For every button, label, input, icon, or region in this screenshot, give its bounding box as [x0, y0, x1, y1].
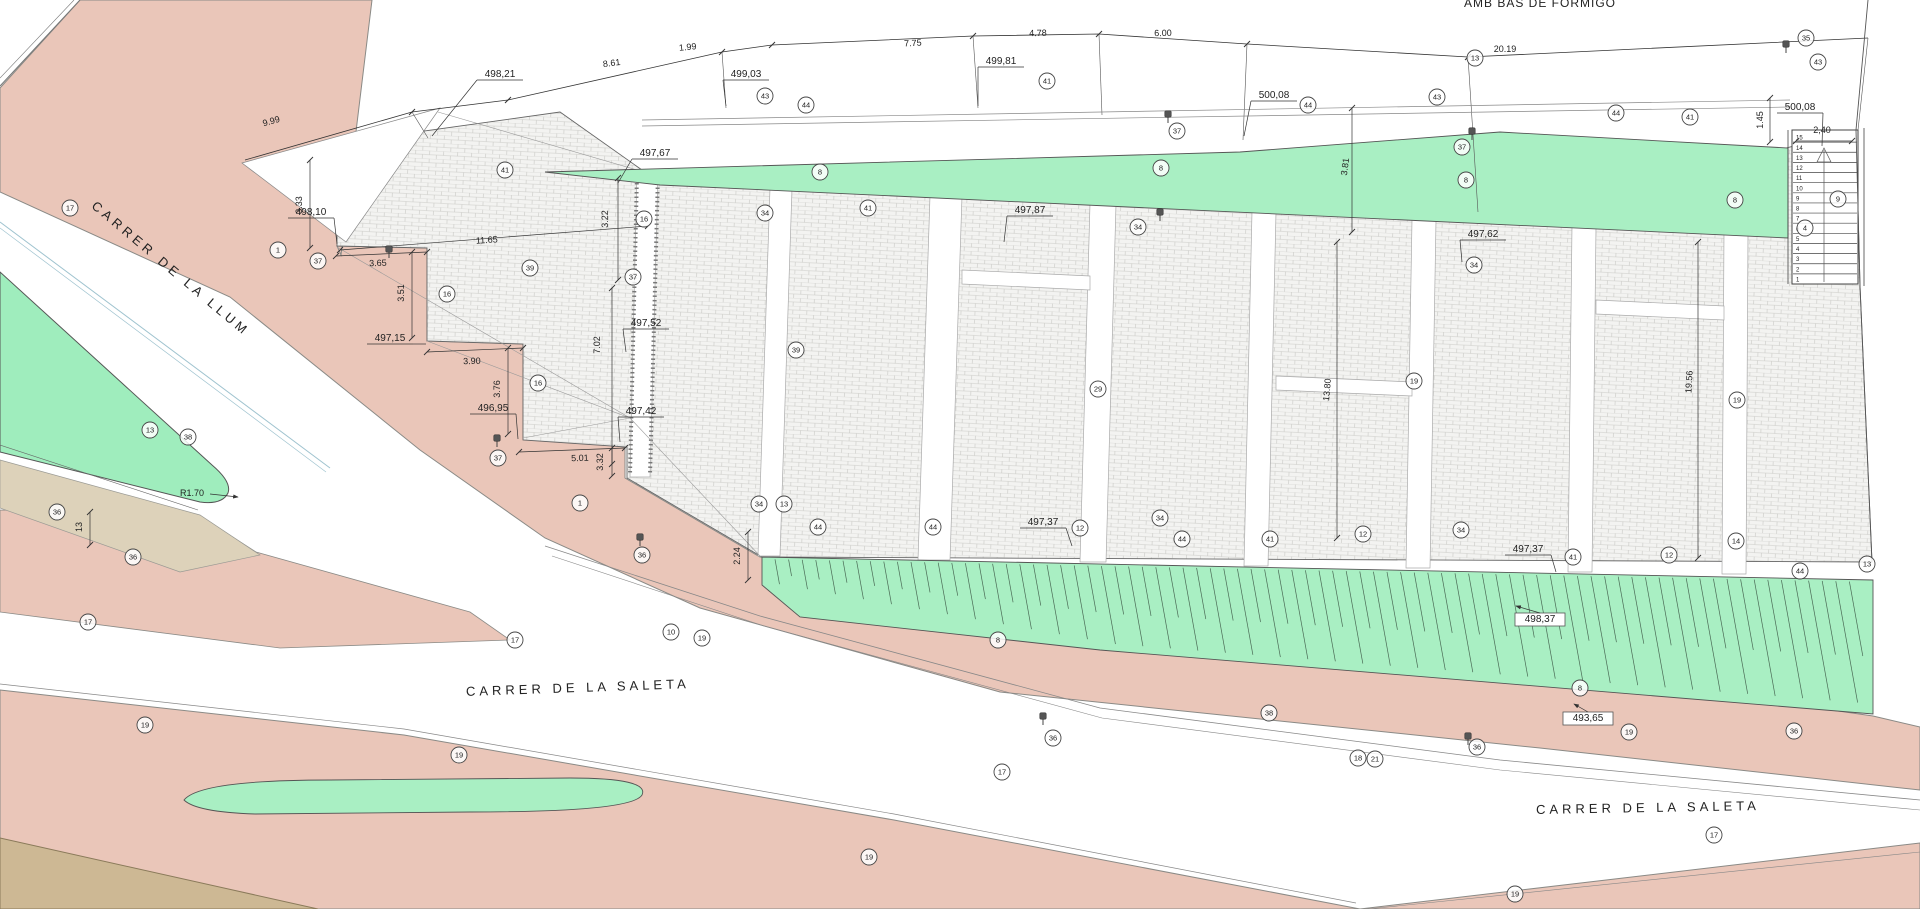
- keynote: 8: [1572, 680, 1588, 696]
- keynote-number: 43: [1433, 93, 1441, 102]
- street-name-label: CARRER DE LA SALETA: [1536, 798, 1760, 817]
- stair-number: 14: [1796, 146, 1803, 152]
- keynote-number: 41: [864, 204, 872, 213]
- site-plan-drawing: 123456789101112131415 R: [0, 0, 1920, 909]
- keynote-number: 44: [814, 523, 822, 532]
- keynote: 12: [1355, 526, 1371, 542]
- keynote: 36: [1786, 723, 1802, 739]
- stair-number: 10: [1796, 186, 1803, 192]
- dim-text: 3.32: [595, 453, 605, 471]
- keynote: 34: [1453, 522, 1469, 538]
- keynote-number: 14: [1732, 537, 1740, 546]
- keynote-number: 35: [1802, 34, 1810, 43]
- keynote-number: 19: [698, 634, 706, 643]
- keynote-number: 19: [1625, 728, 1633, 737]
- keynote-number: 8: [1464, 176, 1468, 185]
- keynote: 19: [451, 747, 467, 763]
- keynote-number: 16: [640, 215, 648, 224]
- keynote-number: 19: [141, 721, 149, 730]
- elevation-text: 498,10: [296, 207, 327, 218]
- elevation-text: 500,08: [1259, 90, 1290, 101]
- dim-text: 3.51: [396, 284, 406, 302]
- keynote: 19: [1507, 886, 1523, 902]
- elevation-text: 497,15: [375, 333, 406, 344]
- keynote-number: 13: [1471, 54, 1479, 63]
- elevation-text: 497,52: [631, 318, 662, 329]
- keynote: 34: [1152, 510, 1168, 526]
- keynote: 17: [1706, 827, 1722, 843]
- keynote: 41: [1682, 109, 1698, 125]
- keynote-number: 18: [1354, 754, 1362, 763]
- street-name-label: CARRER DE LA SALETA: [466, 676, 690, 699]
- dim-text: 5.01: [571, 453, 589, 464]
- keynote: 14: [1728, 533, 1744, 549]
- keynote-number: 39: [792, 346, 800, 355]
- keynote: 41: [1565, 549, 1581, 565]
- keynote-number: 1: [578, 499, 582, 508]
- utility-marker-head: [1465, 733, 1471, 739]
- keynote-number: 17: [1710, 831, 1718, 840]
- keynote-number: 38: [184, 433, 192, 442]
- elevation-text: 500,08: [1785, 102, 1816, 113]
- keynote: 39: [788, 342, 804, 358]
- keynote-number: 44: [929, 523, 937, 532]
- keynote-number: 8: [996, 636, 1000, 645]
- utility-marker-head: [1165, 111, 1171, 117]
- utility-marker-head: [386, 246, 392, 252]
- keynote-number: 19: [455, 751, 463, 760]
- keynote-number: 41: [1266, 535, 1274, 544]
- dim-text: 7.02: [592, 336, 602, 354]
- keynote-number: 34: [1457, 526, 1465, 535]
- keynote-number: 17: [66, 204, 74, 213]
- keynote: 36: [125, 549, 141, 565]
- keynote: 8: [1153, 160, 1169, 176]
- keynote-number: 34: [1134, 223, 1142, 232]
- keynote-number: 43: [761, 92, 769, 101]
- keynote: 43: [1810, 54, 1826, 70]
- keynote-number: 19: [865, 853, 873, 862]
- elevation-text: 498,37: [1525, 614, 1556, 625]
- dimension: 7.75: [904, 38, 922, 49]
- keynote-number: 17: [511, 636, 519, 645]
- utility-marker-head: [494, 435, 500, 441]
- elevation-text: 499,03: [731, 69, 762, 80]
- elevation-text: 497,37: [1513, 544, 1544, 555]
- dim-text: 1.45: [1755, 111, 1765, 129]
- keynote-number: 17: [998, 768, 1006, 777]
- keynote-number: 44: [1178, 535, 1186, 544]
- keynote: 19: [694, 630, 710, 646]
- dim-text: 19.56: [1683, 370, 1694, 393]
- sidewalk-southeast-band: [1360, 843, 1920, 909]
- keynote: 17: [62, 200, 78, 216]
- keynote: 44: [1300, 97, 1316, 113]
- elevation-leader: [1244, 101, 1251, 136]
- utility-marker: [1165, 111, 1171, 123]
- keynote: 38: [1261, 705, 1277, 721]
- keynote: 41: [860, 200, 876, 216]
- keynote: 37: [1454, 139, 1470, 155]
- dimension: 4.78: [1029, 28, 1047, 38]
- keynote-number: 12: [1665, 551, 1673, 560]
- dim-text: 1.99: [678, 41, 696, 53]
- keynote: 17: [80, 614, 96, 630]
- keynote-number: 44: [802, 101, 810, 110]
- elevation-text: 496,95: [478, 403, 509, 414]
- dim-text: 13: [74, 522, 84, 532]
- keynote: 1: [572, 495, 588, 511]
- keynote: 44: [810, 519, 826, 535]
- dim-text: 6.00: [1154, 28, 1172, 38]
- keynote-number: 37: [1458, 143, 1466, 152]
- keynote: 34: [751, 496, 767, 512]
- utility-marker: [1040, 713, 1046, 725]
- dim-text: 13.80: [1321, 378, 1333, 401]
- keynote: 44: [1608, 105, 1624, 121]
- elevation-text: 497,42: [626, 406, 657, 417]
- keynote-number: 44: [1304, 101, 1312, 110]
- elevation-text: 493,65: [1573, 713, 1604, 724]
- keynote: 34: [1466, 257, 1482, 273]
- stair-number: 13: [1796, 156, 1803, 162]
- stairs: 123456789101112131415: [1788, 128, 1864, 286]
- keynote: 37: [490, 450, 506, 466]
- keynote: 41: [497, 162, 513, 178]
- dimension: 1.45: [1755, 95, 1773, 145]
- keynote: 36: [49, 504, 65, 520]
- keynote: 13: [1467, 50, 1483, 66]
- keynote: 16: [439, 286, 455, 302]
- keynote-number: 38: [1265, 709, 1273, 718]
- keynote-number: 43: [1814, 58, 1822, 67]
- keynote-number: 37: [494, 454, 502, 463]
- keynote: 41: [1262, 531, 1278, 547]
- stair-number: 12: [1796, 166, 1803, 172]
- utility-marker-head: [1157, 209, 1163, 215]
- keynote-number: 37: [1173, 127, 1181, 136]
- keynote-number: 21: [1371, 755, 1379, 764]
- dim-text: 20.19: [1494, 44, 1517, 54]
- elevation-text: 497,62: [1468, 229, 1499, 240]
- keynote: 34: [1130, 219, 1146, 235]
- dim-text: 3.22: [600, 210, 610, 228]
- keynote-number: 8: [1159, 164, 1163, 173]
- dim-text: 8.61: [602, 57, 621, 69]
- keynote-number: 41: [501, 166, 509, 175]
- keynote: 18: [1350, 750, 1366, 766]
- keynote: 43: [1429, 89, 1445, 105]
- stair-number: 11: [1796, 176, 1803, 182]
- keynote-number: 19: [1733, 396, 1741, 405]
- keynote: 13: [142, 422, 158, 438]
- keynote: 8: [1727, 192, 1743, 208]
- keynote: 21: [1367, 751, 1383, 767]
- keynote-number: 16: [443, 290, 451, 299]
- keynote-number: 41: [1569, 553, 1577, 562]
- keynote: 43: [757, 88, 773, 104]
- dim-text: 3.81: [1339, 157, 1351, 176]
- keynote-number: 36: [1049, 734, 1057, 743]
- keynote: 8: [990, 632, 1006, 648]
- elevation-text: 497,87: [1015, 205, 1046, 216]
- elevation-text: 497,37: [1028, 517, 1059, 528]
- keynote: 34: [757, 205, 773, 221]
- keynote: 37: [625, 269, 641, 285]
- dim-text: 2,40: [1813, 125, 1831, 135]
- keynote-number: 34: [761, 209, 769, 218]
- elevation-text: 498,21: [485, 69, 516, 80]
- keynote-number: 34: [755, 500, 763, 509]
- keynote: 19: [1621, 724, 1637, 740]
- keynote: 4: [1797, 220, 1813, 236]
- dim-text: 3.90: [463, 356, 481, 367]
- elevation-label: 500,08: [1244, 90, 1297, 136]
- elevation-label: 499,81: [978, 56, 1024, 106]
- keynote-number: 36: [1790, 727, 1798, 736]
- dim-text: 2.24: [732, 547, 742, 565]
- keynote-number: 13: [780, 500, 788, 509]
- keynote: 12: [1072, 520, 1088, 536]
- keynote-number: 8: [818, 168, 822, 177]
- keynote-number: 10: [667, 628, 675, 637]
- keynote: 36: [1045, 730, 1061, 746]
- keynote-number: 1: [276, 246, 280, 255]
- keynote: 29: [1090, 381, 1106, 397]
- keynote-number: 36: [1473, 743, 1481, 752]
- elevation-text: 497,67: [640, 148, 671, 159]
- keynote: 38: [180, 429, 196, 445]
- keynote-number: 13: [146, 426, 154, 435]
- keynote-number: 4: [1803, 224, 1807, 233]
- utility-marker-head: [1469, 128, 1475, 134]
- keynote: 44: [1792, 563, 1808, 579]
- keynote: 17: [994, 764, 1010, 780]
- keynote: 8: [1458, 172, 1474, 188]
- keynote: 19: [1729, 392, 1745, 408]
- keynote-number: 16: [534, 379, 542, 388]
- keynote: 9: [1830, 191, 1846, 207]
- utility-marker: [1783, 41, 1789, 53]
- keynote: 39: [522, 260, 538, 276]
- keynote-number: 44: [1612, 109, 1620, 118]
- dim-text: 4.78: [1029, 28, 1047, 38]
- utility-marker-head: [1040, 713, 1046, 719]
- keynote-number: 9: [1836, 195, 1840, 204]
- keynote-number: 8: [1578, 684, 1582, 693]
- keynote: 36: [1469, 739, 1485, 755]
- dim-text: 3.65: [369, 258, 387, 269]
- keynote: 13: [776, 496, 792, 512]
- green-island-west: [0, 272, 229, 503]
- utility-marker-head: [637, 534, 643, 540]
- keynote-number: 37: [314, 257, 322, 266]
- dimension: 1.99: [678, 41, 696, 53]
- keynote: 17: [507, 632, 523, 648]
- keynote-number: 12: [1076, 524, 1084, 533]
- dimension: 6.00: [1154, 28, 1172, 38]
- keynote: 44: [1174, 531, 1190, 547]
- keynote: 36: [634, 547, 650, 563]
- dim-text: 3.76: [492, 380, 502, 398]
- keynote: 8: [812, 164, 828, 180]
- keynote-number: 39: [526, 264, 534, 273]
- keynote-number: 17: [84, 618, 92, 627]
- keynote: 1: [270, 242, 286, 258]
- keynote-number: 12: [1359, 530, 1367, 539]
- dim-text: 7.75: [904, 38, 922, 49]
- keynote-number: 36: [638, 551, 646, 560]
- keynote-number: 41: [1043, 77, 1051, 86]
- top-right-note: AMB BAS DE FORMIGO: [1464, 0, 1616, 10]
- keynote-number: 29: [1094, 385, 1102, 394]
- dimension: 8.61: [602, 57, 621, 69]
- keynote: 12: [1661, 547, 1677, 563]
- keynote: 19: [1406, 373, 1422, 389]
- keynote: 37: [310, 253, 326, 269]
- keynote: 19: [861, 849, 877, 865]
- keynote-number: 36: [129, 553, 137, 562]
- keynote-number: 19: [1511, 890, 1519, 899]
- radius-label: R1.70: [180, 488, 204, 498]
- keynote: 35: [1798, 30, 1814, 46]
- keynote-number: 34: [1156, 514, 1164, 523]
- keynote: 37: [1169, 123, 1185, 139]
- keynote: 13: [1859, 556, 1875, 572]
- keynote: 19: [137, 717, 153, 733]
- keynote-number: 37: [629, 273, 637, 282]
- keynote-number: 19: [1410, 377, 1418, 386]
- keynote: 44: [925, 519, 941, 535]
- keynote-number: 13: [1863, 560, 1871, 569]
- keynote: 10: [663, 624, 679, 640]
- keynote: 16: [636, 211, 652, 227]
- site-plan-canvas: 123456789101112131415 R: [0, 0, 1920, 909]
- stairs-body: [1792, 130, 1858, 284]
- keynote: 41: [1039, 73, 1055, 89]
- keynote-number: 36: [53, 508, 61, 517]
- keynote-number: 34: [1470, 261, 1478, 270]
- keynote-number: 41: [1686, 113, 1694, 122]
- dimension: 20.19: [1494, 44, 1517, 54]
- keynote: 44: [798, 97, 814, 113]
- utility-marker-head: [1783, 41, 1789, 47]
- dim-text: 11.65: [476, 234, 499, 246]
- keynote-number: 8: [1733, 196, 1737, 205]
- keynote-number: 44: [1796, 567, 1804, 576]
- elevation-text: 499,81: [986, 56, 1017, 67]
- keynote: 16: [530, 375, 546, 391]
- green-ellipse-south: [184, 778, 643, 814]
